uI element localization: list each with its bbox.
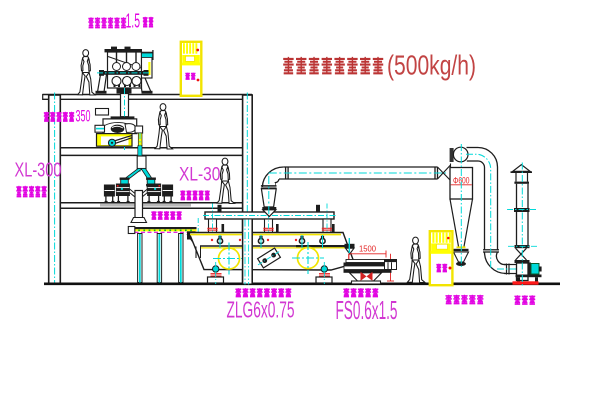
svg-text:XL-300: XL-300: [15, 160, 62, 182]
svg-text:FS0.6x1.5: FS0.6x1.5: [336, 295, 398, 325]
svg-text:(500kg/h): (500kg/h): [387, 50, 476, 81]
svg-text:1500: 1500: [359, 245, 377, 254]
svg-text:350: 350: [76, 108, 91, 126]
svg-text:ZLG6x0.75: ZLG6x0.75: [227, 297, 295, 323]
svg-text:1.5: 1.5: [126, 11, 141, 33]
